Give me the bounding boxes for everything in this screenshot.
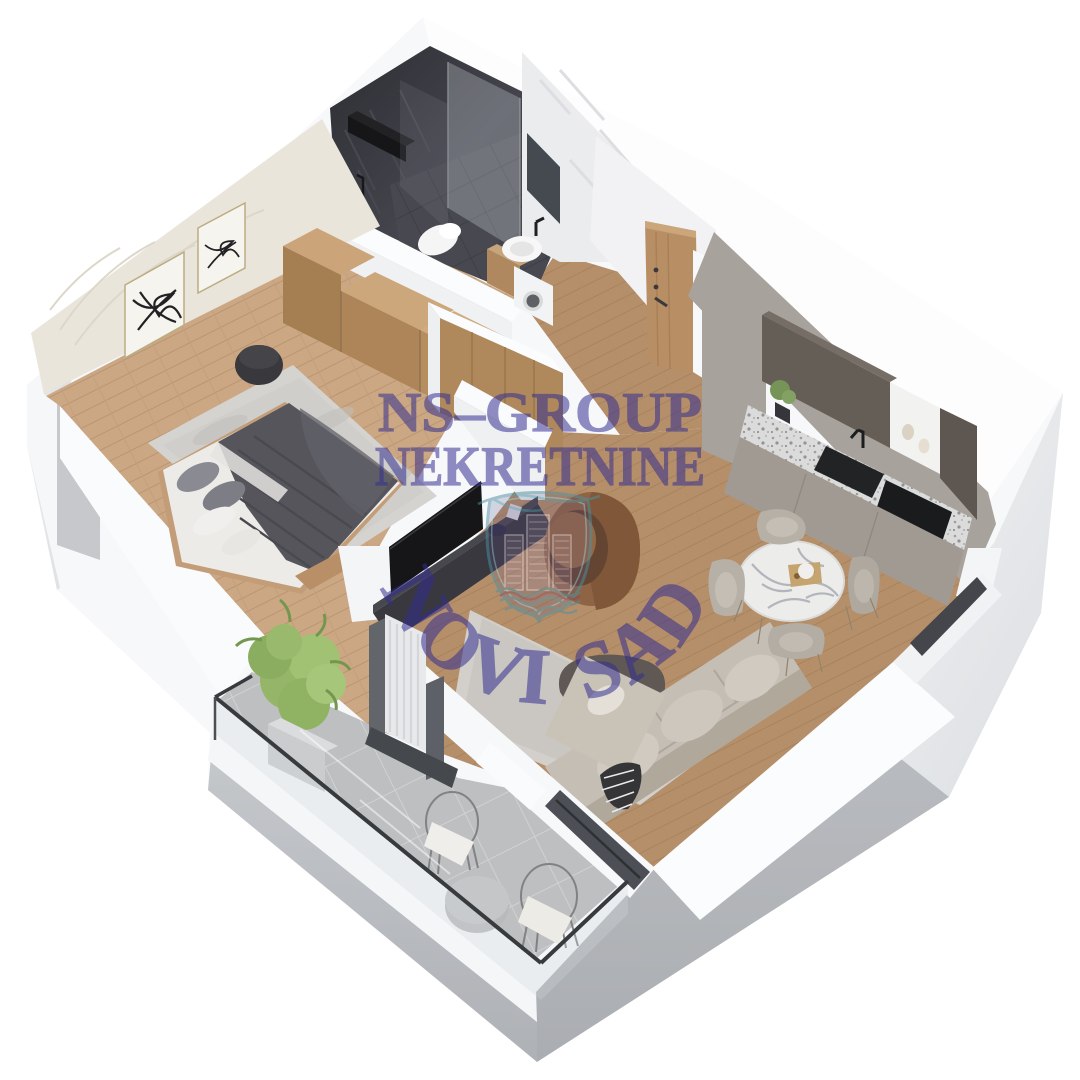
svg-text:NEKRETNINE: NEKRETNINE: [375, 436, 705, 498]
svg-text:NS–GROUP: NS–GROUP: [378, 382, 702, 444]
